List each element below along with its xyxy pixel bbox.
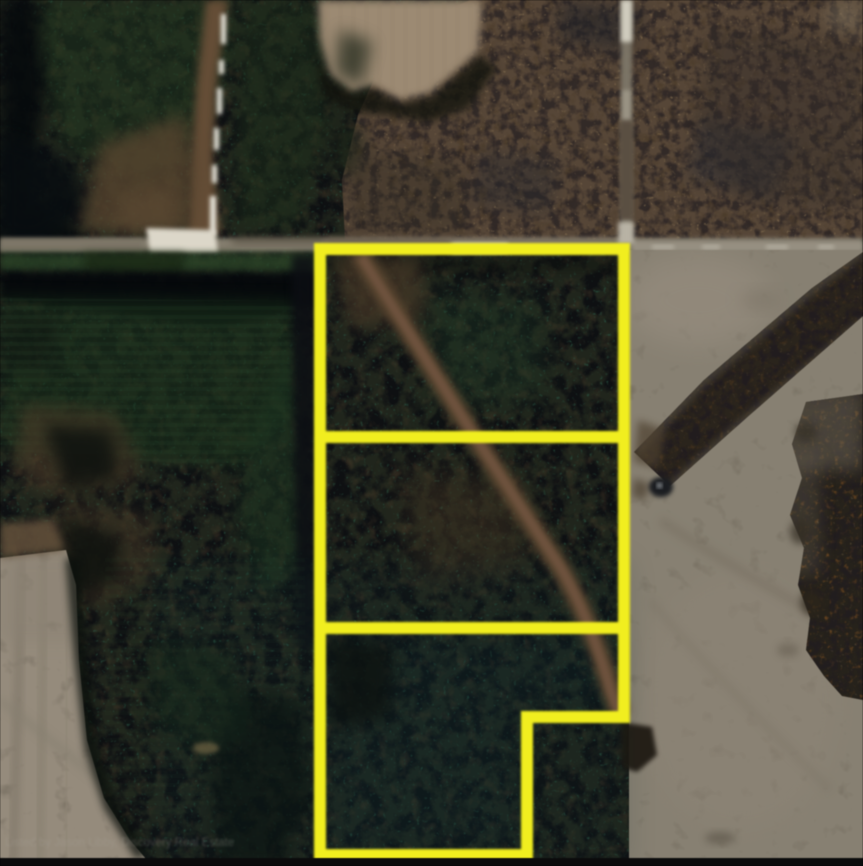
svg-text:Listed by Jason Libby, Discove: Listed by Jason Libby, Discovery Real Es… [5,837,234,849]
